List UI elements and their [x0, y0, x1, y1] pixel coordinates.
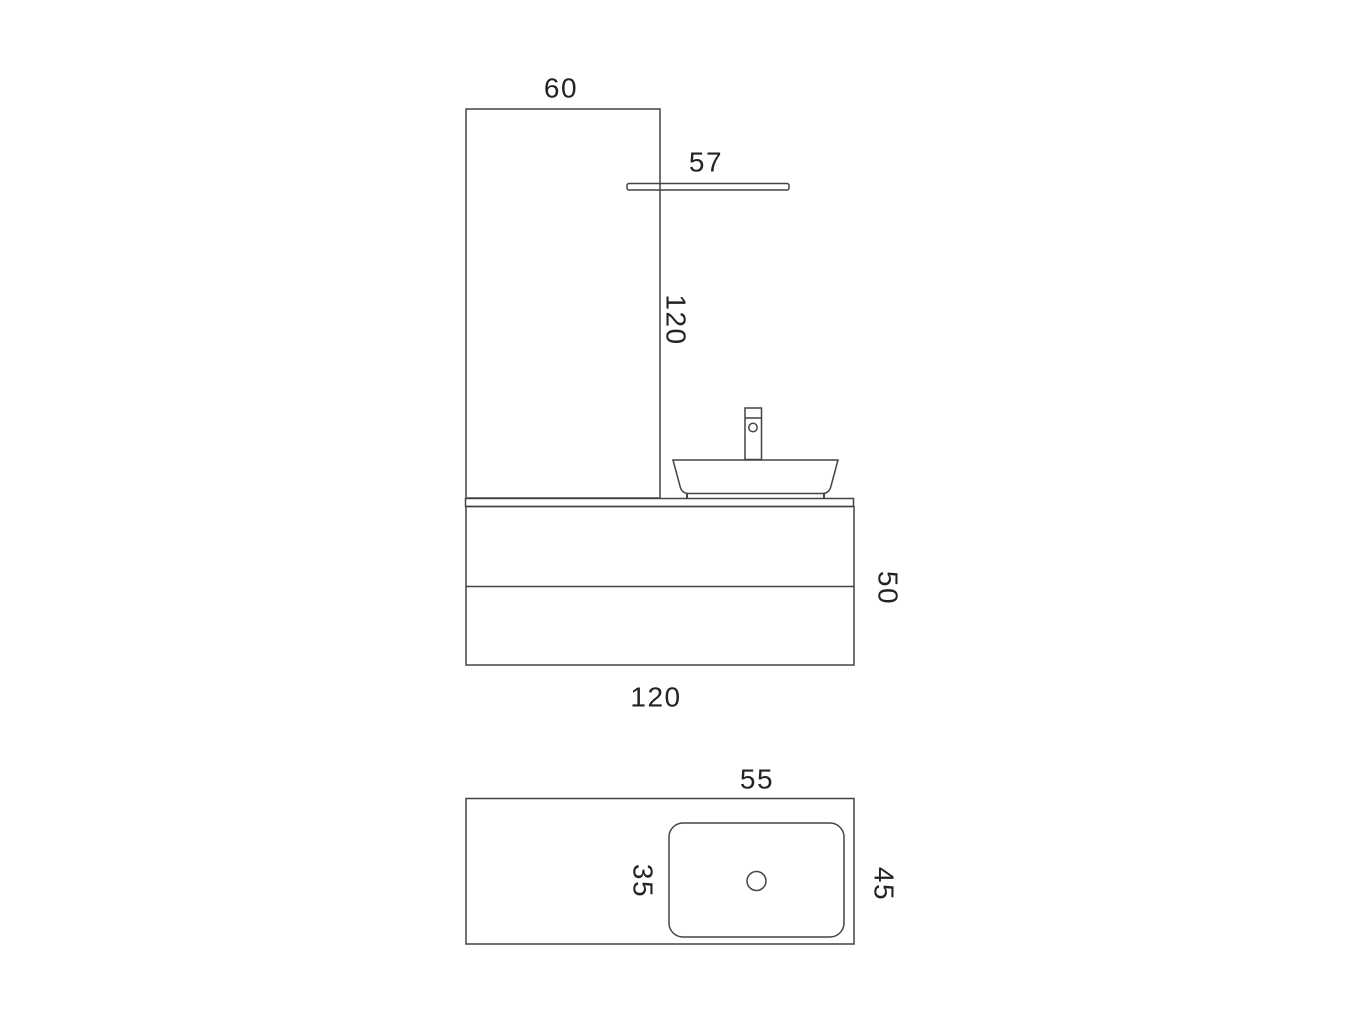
vanity-dimension-diagram: 60 57 120 50 120 55 35 45: [0, 0, 1370, 1027]
counter-depth-label: 45: [869, 867, 900, 901]
shelf-width-label: 57: [689, 147, 723, 178]
shelf-outline: [627, 184, 789, 191]
technical-drawing-svg: 60 57 120 50 120 55 35 45: [0, 0, 1370, 1027]
panel-height-label: 120: [661, 294, 692, 345]
front-panel-outline: [466, 109, 660, 498]
basin-width-label: 55: [740, 764, 774, 795]
panel-width-label: 60: [544, 73, 578, 104]
cabinet-width-label: 120: [630, 682, 681, 713]
vessel-basin-front: [673, 460, 838, 494]
faucet-body: [745, 408, 762, 460]
basin-depth-label: 35: [628, 864, 659, 898]
faucet-hole-icon: [749, 423, 757, 431]
basin-top-view: [669, 823, 844, 937]
countertop-top-view: [466, 799, 854, 945]
drain-hole-icon: [747, 872, 766, 891]
cabinet-height-label: 50: [873, 571, 904, 605]
countertop-front: [466, 499, 854, 507]
